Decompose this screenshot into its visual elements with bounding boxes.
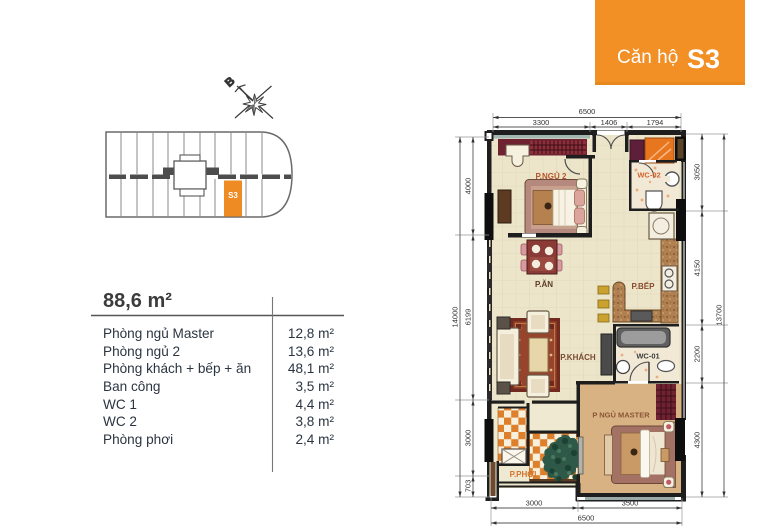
svg-text:WC-01: WC-01 <box>636 352 659 361</box>
svg-text:S3: S3 <box>687 44 720 74</box>
svg-text:48,1 m²: 48,1 m² <box>288 361 335 376</box>
svg-text:3,5 m²: 3,5 m² <box>295 379 334 394</box>
svg-text:P.KHÁCH: P.KHÁCH <box>560 353 596 362</box>
svg-text:13700: 13700 <box>715 305 724 326</box>
svg-text:6500: 6500 <box>579 107 596 116</box>
svg-text:Phòng ngủ Master: Phòng ngủ Master <box>103 326 215 341</box>
svg-text:1406: 1406 <box>601 118 618 127</box>
svg-text:P.BẾP: P.BẾP <box>632 281 656 291</box>
svg-text:2,4 m²: 2,4 m² <box>295 432 334 447</box>
svg-text:13,6 m²: 13,6 m² <box>288 344 335 359</box>
svg-text:Căn hộ: Căn hộ <box>617 47 678 68</box>
svg-text:Phòng khách + bếp + ăn: Phòng khách + bếp + ăn <box>103 361 251 376</box>
svg-text:6500: 6500 <box>578 514 595 523</box>
svg-text:1794: 1794 <box>647 118 664 127</box>
svg-text:P.NGỦ 2: P.NGỦ 2 <box>536 172 568 181</box>
svg-text:P.ĂN: P.ĂN <box>535 280 553 289</box>
svg-text:4,4 m²: 4,4 m² <box>295 397 334 412</box>
svg-text:3050: 3050 <box>693 164 702 181</box>
svg-text:Ban công: Ban công <box>103 379 160 394</box>
svg-text:4150: 4150 <box>693 260 702 277</box>
svg-text:WC 1: WC 1 <box>103 397 137 412</box>
svg-text:3500: 3500 <box>622 499 639 508</box>
svg-text:6199: 6199 <box>464 309 473 326</box>
svg-text:Phòng ngủ 2: Phòng ngủ 2 <box>103 344 180 359</box>
svg-text:P.PHƠI: P.PHƠI <box>510 470 537 479</box>
svg-text:4300: 4300 <box>693 432 702 449</box>
svg-text:703: 703 <box>464 480 473 493</box>
svg-text:P NGỦ MASTER: P NGỦ MASTER <box>592 411 650 420</box>
svg-text:2200: 2200 <box>693 346 702 363</box>
svg-text:S3: S3 <box>228 191 238 200</box>
svg-text:3300: 3300 <box>533 118 550 127</box>
svg-text:12,8 m²: 12,8 m² <box>288 326 335 341</box>
svg-text:Phòng phơi: Phòng phơi <box>103 432 173 447</box>
svg-text:88,6 m²: 88,6 m² <box>103 290 172 312</box>
svg-text:3000: 3000 <box>464 430 473 447</box>
svg-text:3000: 3000 <box>526 499 543 508</box>
svg-text:WC-02: WC-02 <box>637 171 660 180</box>
svg-text:WC 2: WC 2 <box>103 414 137 429</box>
svg-text:14000: 14000 <box>451 307 460 328</box>
svg-text:3,8 m²: 3,8 m² <box>295 414 334 429</box>
svg-text:4000: 4000 <box>464 178 473 195</box>
